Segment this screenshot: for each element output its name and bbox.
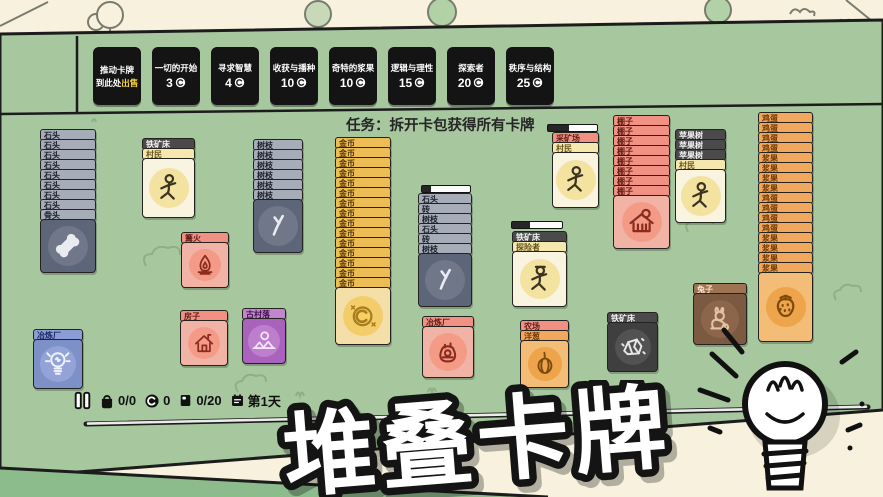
- rabbit-icon: [701, 300, 739, 338]
- smelter-card[interactable]: 冶炼厂: [422, 318, 474, 378]
- booster-button-5[interactable]: 逻辑与理性15: [388, 47, 436, 105]
- card-face[interactable]: [422, 326, 474, 378]
- shed-stack[interactable]: 棚子棚子棚子棚子棚子棚子棚子棚子: [613, 117, 670, 249]
- app-preview-poster: 推动卡牌到此处出售一切的开始3寻求智慧4收获与播种10奇特的浆果10逻辑与理性1…: [0, 0, 883, 497]
- villager-icon: [681, 176, 721, 216]
- ironore-villager-stack[interactable]: 铁矿床村民: [142, 140, 195, 218]
- card-face[interactable]: [552, 152, 599, 208]
- sell-area-line1: 推动卡牌: [100, 65, 134, 75]
- coin-icon: [296, 77, 307, 88]
- stone-bone-stack[interactable]: 石头石头石头石头石头石头石头石头骨头: [40, 131, 96, 273]
- pause-button[interactable]: [74, 391, 91, 410]
- coin-icon: [532, 77, 543, 88]
- booster-title: 逻辑与理性: [391, 63, 434, 73]
- card-face[interactable]: [758, 272, 813, 342]
- card-face[interactable]: [418, 253, 472, 307]
- bag-icon: [99, 393, 115, 409]
- day-indicator: 第1天: [230, 391, 281, 410]
- coin-icon: [234, 77, 245, 88]
- booster-cost: 10: [340, 76, 366, 90]
- stick-icon: [425, 260, 465, 300]
- rabbit-card[interactable]: 兔子: [693, 285, 747, 345]
- card-face[interactable]: [693, 293, 747, 345]
- coin-icon: [175, 77, 186, 88]
- calendar-icon: [230, 393, 245, 408]
- sell-highlight: 出售: [121, 78, 138, 88]
- booster-cost: 3: [166, 76, 186, 90]
- card-face[interactable]: [242, 318, 286, 364]
- crafting-timer-2: [547, 124, 598, 132]
- booster-cost: 25: [517, 76, 543, 90]
- card-face[interactable]: [142, 158, 195, 218]
- cardpack-icon: [178, 393, 193, 408]
- booster-title: 收获与播种: [273, 63, 316, 73]
- booster-button-2[interactable]: 寻求智慧4: [211, 47, 259, 105]
- ironore-card[interactable]: 铁矿床: [607, 314, 658, 372]
- card-face[interactable]: [607, 322, 658, 372]
- explorer-icon: [520, 259, 560, 299]
- card-face[interactable]: [613, 195, 670, 249]
- card-face[interactable]: [33, 339, 83, 389]
- egg-berry-stack[interactable]: 鸡蛋鸡蛋鸡蛋鸡蛋浆果浆果浆果浆果鸡蛋鸡蛋鸡蛋鸡蛋浆果浆果浆果浆果: [758, 114, 813, 342]
- booster-cost: 4: [225, 76, 245, 90]
- ore-icon: [615, 329, 651, 365]
- coin-icon: [355, 77, 366, 88]
- village-card[interactable]: 古村落: [242, 310, 286, 364]
- card-face[interactable]: [181, 242, 229, 288]
- strawberry-icon: [766, 287, 806, 327]
- villager-icon: [556, 160, 596, 200]
- bag-count: 0/0: [118, 393, 136, 408]
- coin-icon: [473, 77, 484, 88]
- sell-area-line2-prefix: 到此处: [96, 78, 122, 88]
- sell-area-line2: 到此处出售: [96, 78, 139, 88]
- card-face[interactable]: [520, 340, 569, 388]
- ironore-explorer-stack[interactable]: 铁矿床探险者: [512, 233, 567, 307]
- lightbulb-icon: [40, 346, 76, 382]
- day-label: 第1天: [248, 391, 281, 410]
- card-face[interactable]: [675, 169, 726, 223]
- flame-icon: [189, 249, 221, 281]
- booster-title: 探索者: [458, 63, 484, 73]
- card-face[interactable]: [335, 287, 391, 345]
- card-face[interactable]: [253, 199, 303, 253]
- coin-counter: 0: [144, 393, 170, 409]
- booster-cost: 20: [458, 76, 484, 90]
- house-icon: [188, 327, 220, 359]
- idea-smelter-card[interactable]: 冶炼厂: [33, 331, 83, 389]
- status-bar: 0/0 0 0/20 第1天: [74, 391, 281, 410]
- onion-icon: [528, 347, 562, 381]
- bone-icon: [48, 226, 88, 266]
- crafting-timer-0: [421, 185, 471, 193]
- crafting-timer-1: [511, 221, 563, 229]
- booster-cost-value: 25: [517, 76, 530, 90]
- village-icon: [248, 325, 280, 357]
- card-counter: 0/20: [178, 393, 221, 408]
- task-label: 任务：拆开卡包获得所有卡牌: [346, 114, 535, 135]
- booster-cost-value: 4: [225, 76, 232, 90]
- booster-title: 奇特的浆果: [332, 63, 375, 73]
- card-face[interactable]: [512, 251, 567, 307]
- booster-cost: 15: [399, 76, 425, 90]
- booster-cost-value: 10: [281, 76, 294, 90]
- appletree-villager-stack[interactable]: 苹果树苹果树苹果树村民: [675, 131, 726, 223]
- stick-stack[interactable]: 树枝树枝树枝树枝树枝树枝: [253, 141, 303, 253]
- shed-icon: [622, 202, 662, 242]
- booster-cost-value: 15: [399, 76, 412, 90]
- stone-brick-stick-stack[interactable]: 石头砖树枝石头砖树枝: [418, 195, 472, 307]
- booster-button-1[interactable]: 一切的开始3: [152, 47, 200, 105]
- card-face[interactable]: [40, 219, 96, 273]
- farm-onion-stack[interactable]: 农场洋葱: [520, 322, 569, 388]
- booster-button-6[interactable]: 探索者20: [447, 47, 495, 105]
- booster-title: 寻求智慧: [218, 63, 252, 73]
- furnace-icon: [429, 333, 467, 371]
- house-card[interactable]: 房子: [180, 312, 228, 366]
- booster-cost-value: 10: [340, 76, 353, 90]
- coin-icon: [414, 77, 425, 88]
- booster-button-7[interactable]: 秩序与结构25: [506, 47, 554, 105]
- villager-icon: [149, 168, 189, 208]
- stick-icon: [258, 206, 298, 246]
- booster-button-row: 推动卡牌到此处出售一切的开始3寻求智慧4收获与播种10奇特的浆果10逻辑与理性1…: [93, 47, 554, 105]
- coin-icon: [144, 393, 160, 409]
- card-count: 0/20: [196, 393, 221, 408]
- mine-villager-stack[interactable]: 采矿场村民: [552, 134, 599, 208]
- booster-title: 一切的开始: [155, 63, 198, 73]
- card-face[interactable]: [180, 320, 228, 366]
- sell-area-button[interactable]: 推动卡牌到此处出售: [93, 47, 141, 105]
- campfire-card[interactable]: 篝火: [181, 234, 229, 288]
- booster-cost-value: 3: [166, 76, 173, 90]
- booster-cost: 10: [281, 76, 307, 90]
- coin-stack[interactable]: 金币金币金币金币金币金币金币金币金币金币金币金币金币金币金币: [335, 139, 391, 345]
- booster-cost-value: 20: [458, 76, 471, 90]
- coin-count: 0: [163, 393, 170, 408]
- bag-counter: 0/0: [99, 393, 136, 409]
- booster-title: 秩序与结构: [509, 63, 552, 73]
- booster-button-4[interactable]: 奇特的浆果10: [329, 47, 377, 105]
- coin-icon: [343, 296, 383, 336]
- booster-button-3[interactable]: 收获与播种10: [270, 47, 318, 105]
